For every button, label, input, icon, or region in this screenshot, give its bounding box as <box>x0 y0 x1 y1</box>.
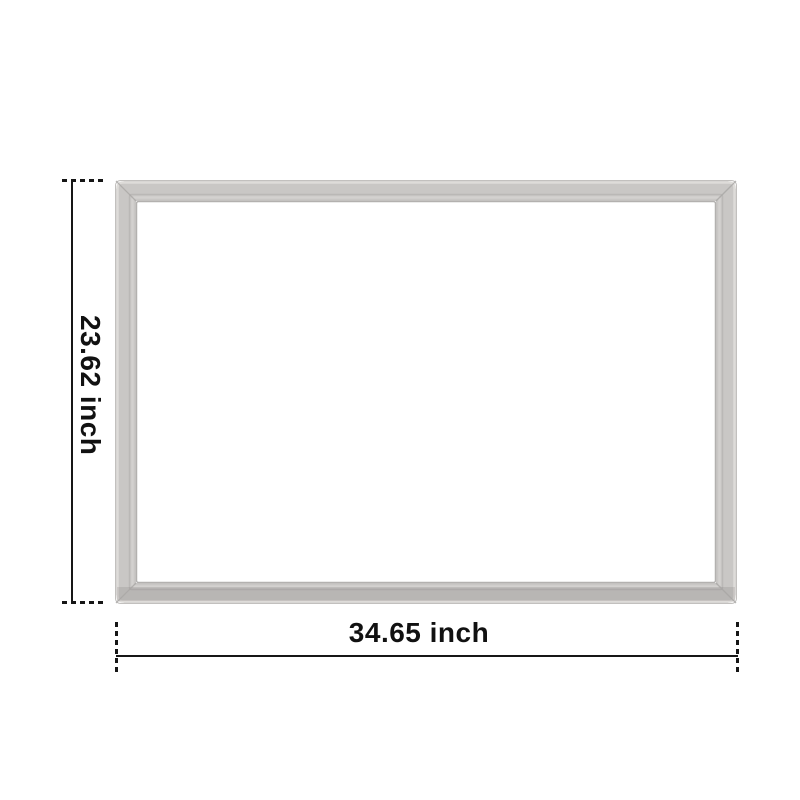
gasket-body <box>126 191 727 594</box>
width-dimension-label: 34.65 inch <box>108 618 730 648</box>
gasket-outer-highlight-ridge <box>118 183 735 602</box>
height-dimension-label: 23.62 inch <box>73 315 107 455</box>
gasket-corner-seams <box>116 181 736 603</box>
gasket-inner-edge <box>137 202 716 583</box>
gasket-inner-band <box>133 198 720 587</box>
gasket-bottom-shading <box>117 587 735 601</box>
door-gasket-photo <box>115 180 737 604</box>
gasket-outer-edge <box>116 181 737 604</box>
product-dimension-image: 23.62 inch 34.65 inch <box>0 0 800 800</box>
width-dimension-line <box>116 655 738 657</box>
height-dimension-cap-bottom <box>62 601 106 604</box>
gasket-mid-ridge <box>130 195 723 590</box>
gasket-frame-graphic <box>115 180 737 604</box>
height-dimension-cap-top <box>62 179 106 182</box>
width-dimension-cap-right <box>736 622 739 672</box>
